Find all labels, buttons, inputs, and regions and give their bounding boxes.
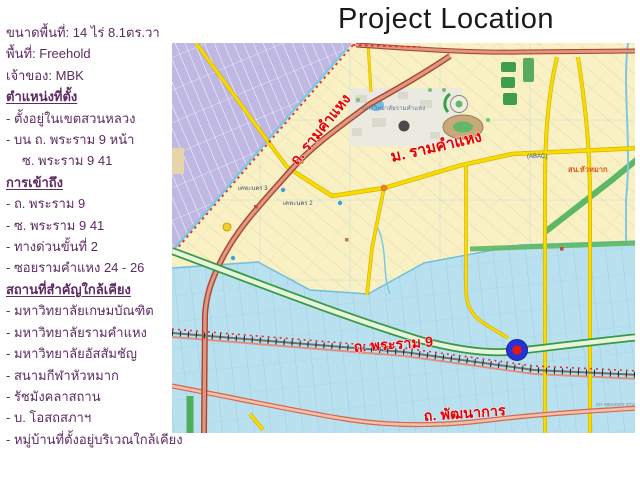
info-line-landmark-3: - มหาวิทยาลัยอัสสัมชัญ: [6, 343, 178, 364]
page-title: Project Location: [338, 3, 554, 36]
info-line-soi-rama9-41: ซ. พระราม 9 41: [6, 150, 178, 171]
info-header-access: การเข้าถึง: [6, 172, 178, 193]
water-drop-icon: [231, 256, 235, 260]
poi-square-icon: [345, 238, 349, 242]
sports-field: [501, 77, 515, 88]
sports-field: [523, 58, 534, 82]
info-line-owner: เจ้าของ: MBK: [6, 65, 178, 86]
info-line-landmark-1: - มหาวิทยาลัยเกษมบัณฑิต: [6, 300, 178, 321]
info-line-landmark-7: - หมู่บ้านที่ตั้งอยู่บริเวณใกล้เคียง: [6, 429, 178, 450]
map-label-khehanakhon2: เคหะนคร 2: [283, 200, 313, 207]
map-canvas: ถ. รามคำแหง ม. รามคำแหง ถ. พระราม 9 ถ. พ…: [172, 43, 635, 433]
water-drop-icon: [338, 201, 342, 205]
info-line-district: - ตั้งอยู่ในเขตสวนหลวง: [6, 108, 178, 129]
info-line-access-3: - ทางด่วนขั้นที่ 2: [6, 236, 178, 257]
poi-square-icon: [560, 247, 564, 251]
info-line-area-size: ขนาดพื้นที่: 14 ไร่ 8.1ตร.วา: [6, 22, 178, 43]
info-line-landmark-2: - มหาวิทยาลัยรามคำแหง: [6, 322, 178, 343]
info-line-access-4: - ซอยรามคำแหง 24 - 26: [6, 257, 178, 278]
info-line-tenure: พื้นที่: Freehold: [6, 43, 178, 64]
sports-field: [503, 93, 517, 105]
info-header-location: ตำแหน่งที่ตั้ง: [6, 86, 178, 107]
district-block: [172, 148, 184, 174]
info-line-access-1: - ถ. พระราม 9: [6, 193, 178, 214]
project-map: ถ. รามคำแหง ม. รามคำแหง ถ. พระราม 9 ถ. พ…: [172, 43, 635, 433]
info-line-landmark-6: - บ. โอสถสภาฯ: [6, 407, 178, 428]
info-line-access-2: - ซ. พระราม 9 41: [6, 215, 178, 236]
project-site-marker: [507, 340, 528, 361]
map-label-abac: (ABAC): [527, 154, 547, 160]
info-header-landmarks: สถานที่สำคัญใกล้เคียง: [6, 279, 178, 300]
map-label-memory-studio: MY MEMORY STUDIO: [596, 402, 635, 407]
info-line-landmark-4: - สนามกีฬาหัวหมาก: [6, 365, 178, 386]
slide: Project Location ขนาดพื้นที่: 14 ไร่ 8.1…: [0, 0, 640, 480]
water-drop-icon: [281, 188, 285, 192]
poi-square-icon: [254, 205, 258, 209]
map-label-huamak-police: สน.หัวหมาก: [568, 165, 608, 174]
auditorium-dome-icon: [399, 121, 410, 132]
info-line-on-rama9: - บน ถ. พระราม 9 หน้า: [6, 129, 178, 150]
landmark-dot-icon: [223, 223, 231, 231]
map-label-campus: มหาวิทยาลัยรามคำแหง: [362, 105, 425, 112]
sports-field: [501, 62, 516, 72]
info-line-landmark-5: - รัชมังคลาสถาน: [6, 386, 178, 407]
map-label-khehanakhon3: เคหะนคร 3: [238, 185, 268, 192]
info-panel: ขนาดพื้นที่: 14 ไร่ 8.1ตร.วา พื้นที่: Fr…: [6, 22, 178, 450]
junction-dot-icon: [381, 185, 387, 191]
